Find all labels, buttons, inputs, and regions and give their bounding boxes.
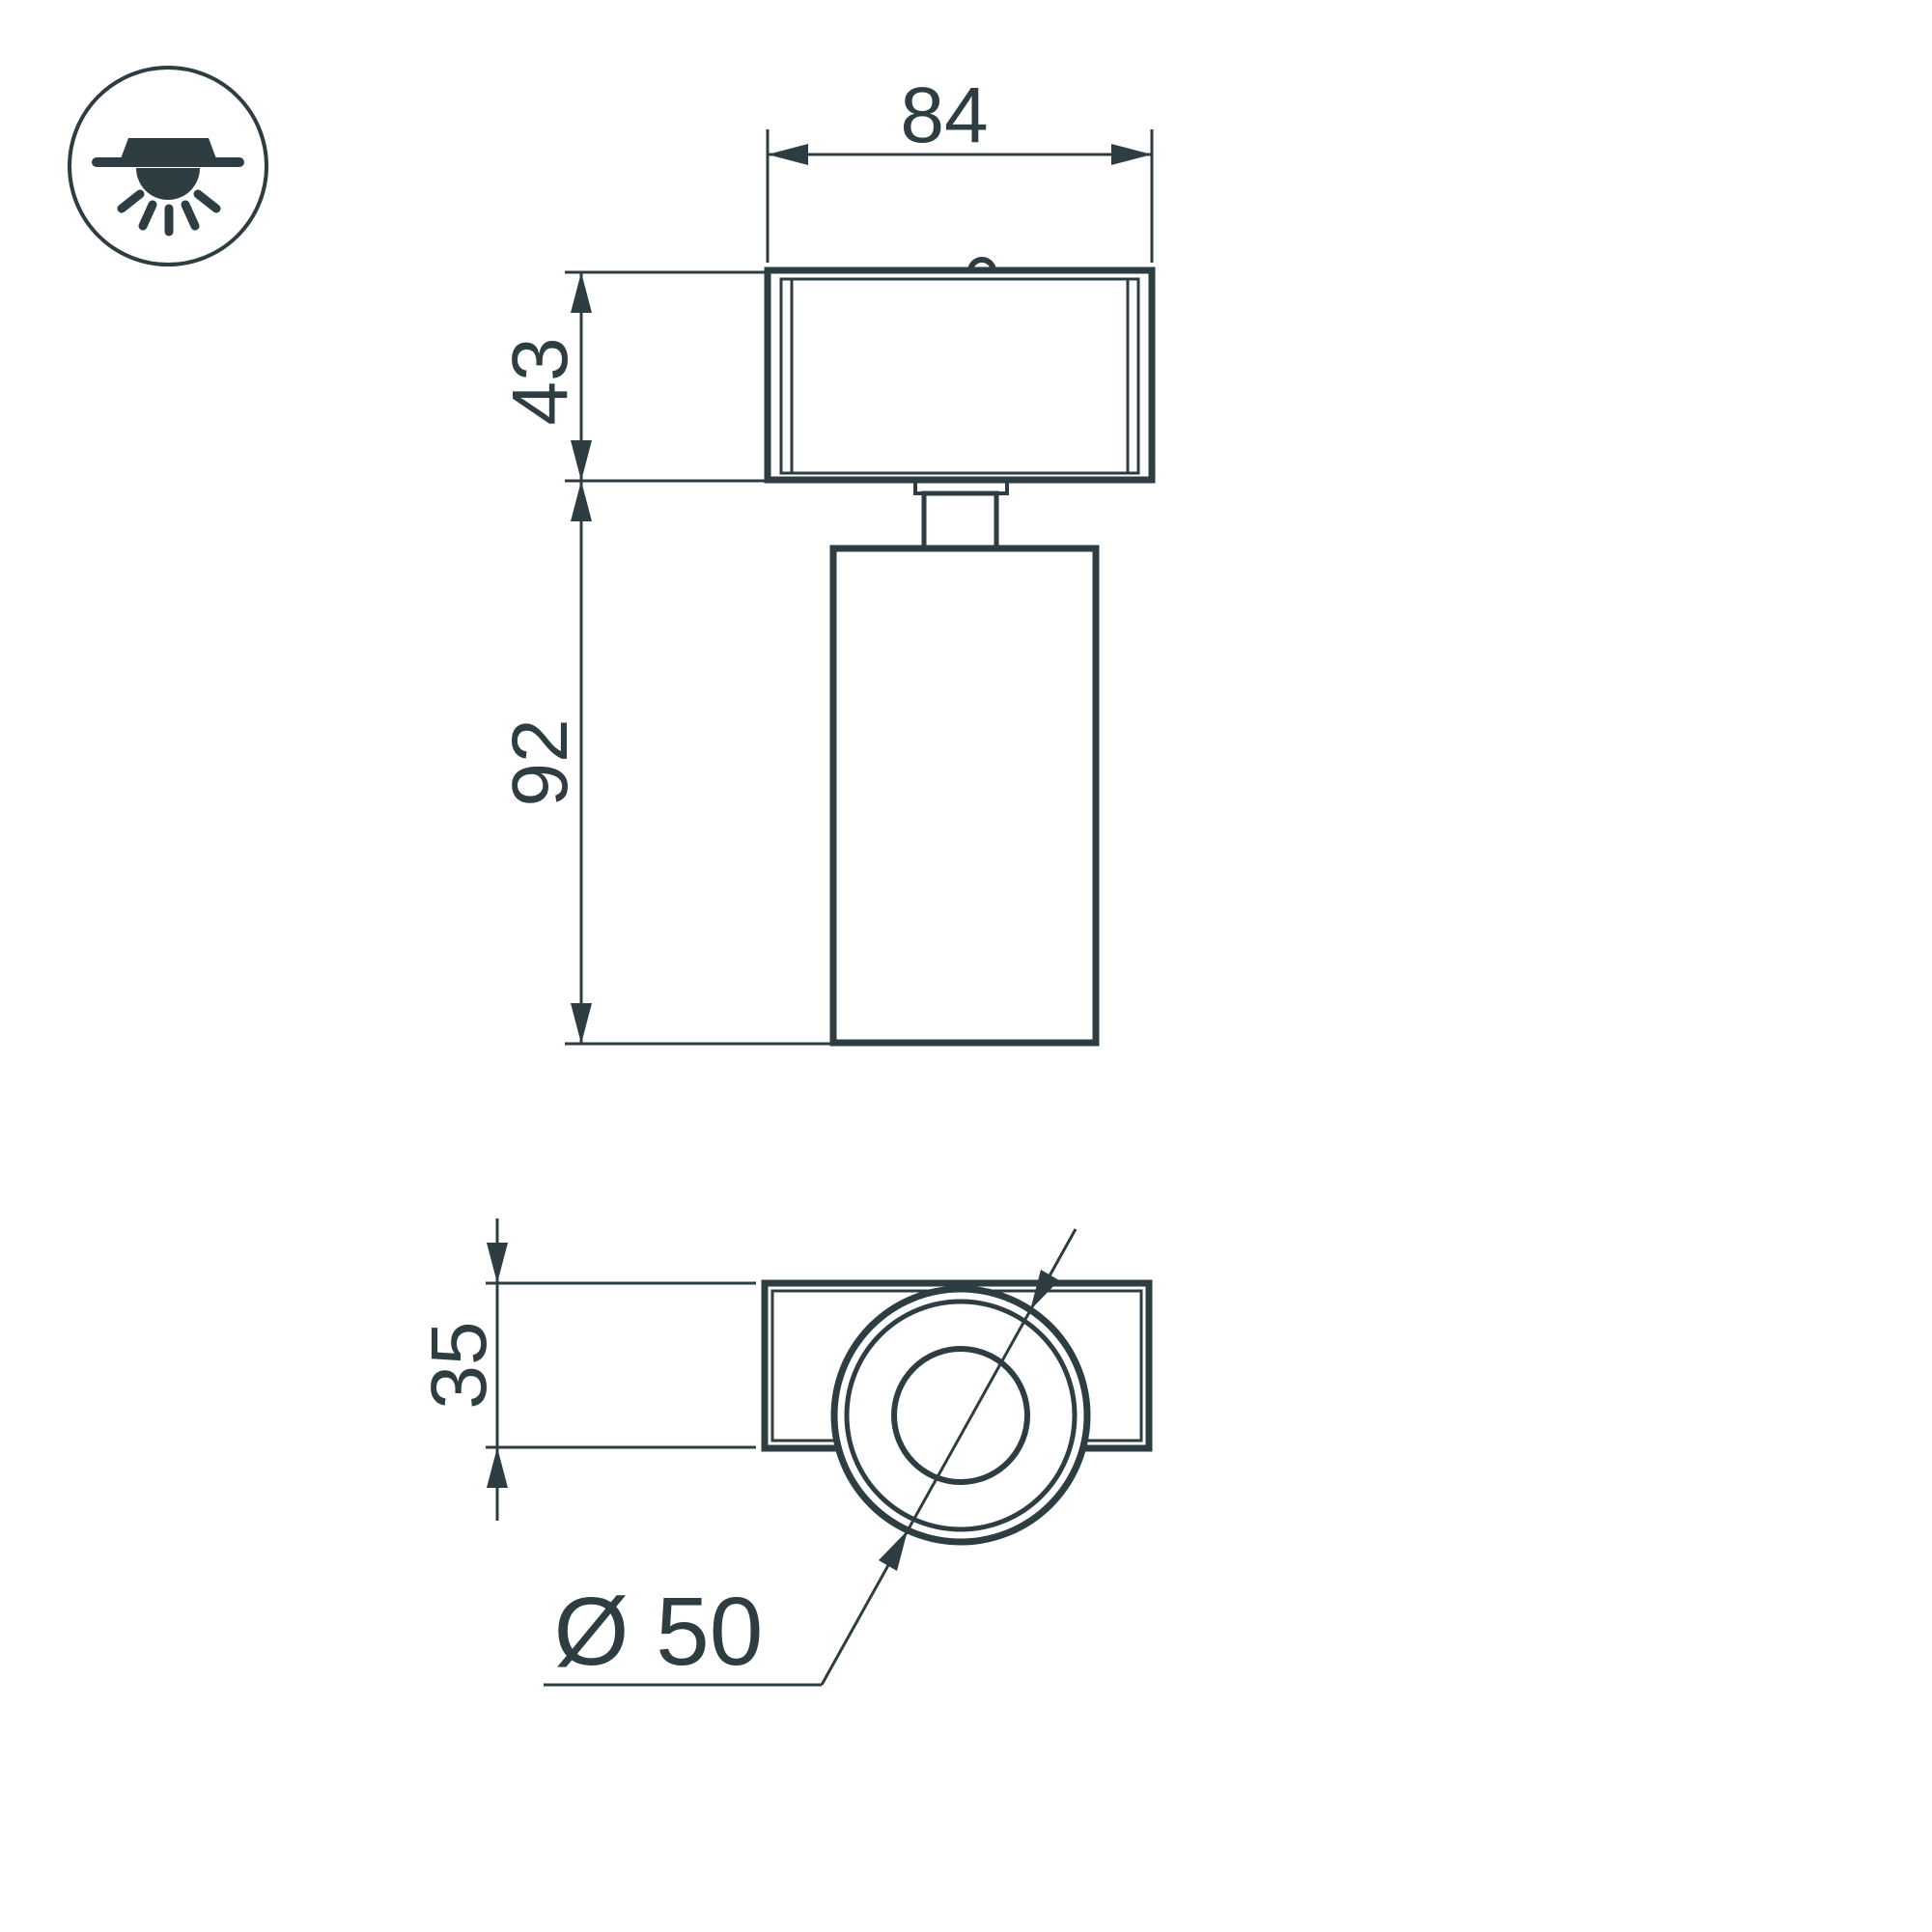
arrowhead-up-icon <box>487 1447 508 1488</box>
arrowhead-down-icon <box>487 1243 508 1283</box>
arrowhead-down-icon <box>571 440 592 481</box>
body-outer-circle <box>834 1289 1087 1542</box>
dimension-width: 84 <box>768 71 1152 263</box>
dim-width-value: 84 <box>900 71 988 159</box>
arrowhead-up-icon <box>571 481 592 521</box>
dimension-body-height: 92 <box>496 481 830 1044</box>
swivel-neck <box>924 493 996 548</box>
ceiling-line-icon <box>92 157 244 167</box>
arrowhead-left-icon <box>768 144 808 165</box>
dimension-depth: 35 <box>415 1218 756 1521</box>
drawing-canvas: 84 43 92 35 Ø 50 <box>0 0 1932 1932</box>
dim-body-height-value: 92 <box>496 718 584 806</box>
spot-body <box>833 548 1096 1043</box>
dim-depth-value: 35 <box>415 1321 503 1409</box>
track-adapter-outline <box>768 270 1152 480</box>
bottom-view <box>765 1283 1149 1542</box>
arrowhead-down-icon <box>571 1003 592 1044</box>
lamp-dome-icon <box>136 168 200 200</box>
surface-ceiling-light-icon <box>92 138 244 232</box>
track-adapter-inner <box>781 279 1138 473</box>
arrowhead-up-icon <box>571 272 592 313</box>
mount-type-badge <box>70 68 266 265</box>
front-view <box>768 260 1152 1043</box>
arrowhead-right-icon <box>1111 144 1152 165</box>
dim-diameter-value: Ø 50 <box>554 1578 764 1686</box>
dim-adapter-height-value: 43 <box>496 337 584 425</box>
technical-drawing: 84 43 92 35 Ø 50 <box>0 0 1932 1932</box>
dimension-adapter-height: 43 <box>496 272 768 481</box>
arrowhead-lower-icon <box>879 1530 908 1571</box>
